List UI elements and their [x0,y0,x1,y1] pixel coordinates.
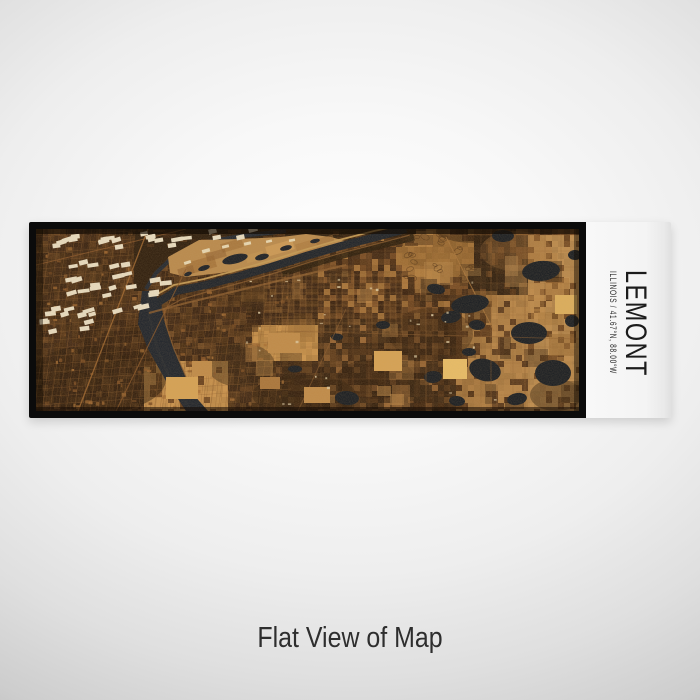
svg-text:LEMONT: LEMONT [619,270,652,377]
svg-text:ILLINOIS / 41.67°N, 88.00°W: ILLINOIS / 41.67°N, 88.00°W [607,271,618,374]
